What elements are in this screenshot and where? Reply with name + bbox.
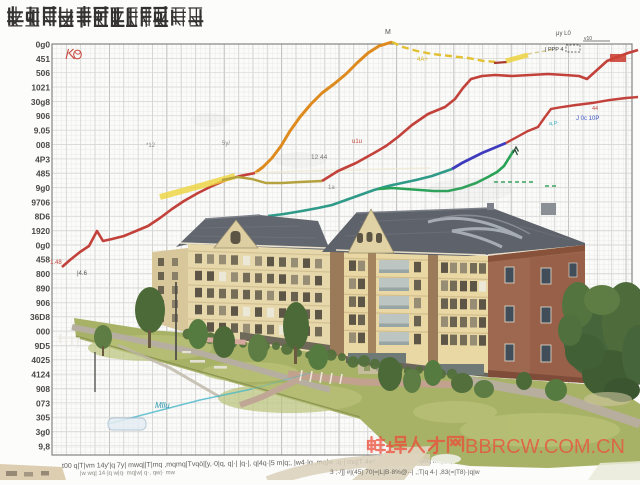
svg-text:μy L0: μy L0 — [556, 31, 571, 37]
svg-text:u1u: u1u — [352, 139, 362, 145]
svg-text:J 0c 10P: J 0c 10P — [576, 116, 599, 122]
svg-text:506: 506 — [36, 68, 50, 78]
svg-text:v10: v10 — [584, 36, 592, 42]
svg-text:1021: 1021 — [31, 83, 50, 93]
svg-text:1920: 1920 — [31, 226, 50, 236]
svg-text:073: 073 — [36, 398, 50, 408]
svg-text:305: 305 — [36, 413, 50, 423]
svg-text:5y/: 5y/ — [222, 141, 230, 147]
svg-text:4124: 4124 — [31, 370, 50, 380]
svg-text:30g8: 30g8 — [31, 97, 50, 107]
svg-text:908: 908 — [36, 384, 50, 394]
svg-text:4025: 4025 — [31, 355, 50, 365]
svg-text:9706: 9706 — [31, 197, 50, 207]
svg-text:906: 906 — [36, 298, 50, 308]
svg-text:3g0: 3g0 — [36, 427, 51, 437]
svg-text:9D5: 9D5 — [35, 341, 51, 351]
svg-text:|w wq| 14·|q w|q· mq|w| q·, qw: |w wq| 14·|q w|q· mq|w| q·, qw|· mw — [80, 470, 176, 477]
svg-text:0g0: 0g0 — [36, 40, 51, 50]
svg-text:800: 800 — [36, 269, 50, 279]
svg-text:485: 485 — [36, 169, 50, 179]
svg-text:4A+: 4A+ — [417, 57, 428, 63]
svg-text:44: 44 — [592, 106, 598, 112]
svg-text:890: 890 — [36, 283, 50, 293]
svg-text:| PPP 4: | PPP 4 — [545, 47, 563, 53]
svg-text:451: 451 — [36, 54, 50, 64]
svg-text:9,8: 9,8 — [38, 441, 50, 451]
svg-text:000: 000 — [36, 327, 50, 337]
svg-text:1.48: 1.48 — [50, 260, 62, 266]
svg-text:9g0: 9g0 — [36, 183, 51, 193]
svg-text:a,P:: a,P: — [549, 121, 559, 127]
svg-text:Mllu: Mllu — [155, 401, 170, 410]
svg-text:8D6: 8D6 — [35, 212, 51, 222]
svg-text:BBRCW.COM.CN: BBRCW.COM.CN — [465, 436, 625, 458]
svg-text:458: 458 — [36, 255, 50, 265]
svg-text:M: M — [385, 29, 391, 36]
svg-text:1a: 1a — [328, 185, 335, 191]
svg-text:9.05: 9.05 — [34, 126, 51, 136]
svg-text:*12: *12 — [146, 143, 156, 149]
svg-text:008: 008 — [36, 140, 50, 150]
svg-text:4P3: 4P3 — [35, 154, 50, 164]
svg-text:36D8: 36D8 — [30, 312, 50, 322]
svg-text:0g0: 0g0 — [36, 240, 51, 250]
svg-text:3 ;·/]] #|(45) 70|=|L|B·8%@·: 3 ;·/]] #|(45) 70|=|L|B·8%@·-| ,;T|q 4·|… — [330, 469, 480, 476]
svg-text:|4.6: |4.6 — [77, 271, 88, 277]
svg-text:906: 906 — [36, 111, 50, 121]
